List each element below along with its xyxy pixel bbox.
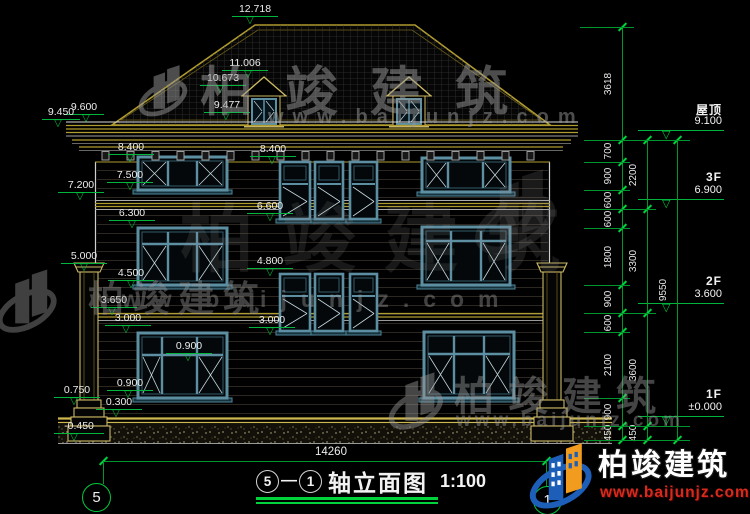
brand-logo-icon bbox=[138, 58, 190, 120]
brand-logo-icon bbox=[528, 438, 596, 512]
brand-logo-icon bbox=[474, 156, 560, 262]
brand-name: 柏竣建筑 bbox=[598, 440, 730, 484]
cad-elevation-drawing: 12.718▽11.006▽10.673▽9.477▽9.600▽9.450▽8… bbox=[0, 0, 750, 514]
brand-url: www.baijunjz.com bbox=[600, 484, 750, 502]
watermark-layer: 柏竣建筑 www.baijunjz.com 柏竣建筑 www.baijunjz.… bbox=[0, 0, 750, 514]
brand-logo-icon bbox=[0, 260, 60, 338]
brand-logo-icon bbox=[388, 364, 446, 434]
brand-logo-block: 柏竣建筑 www.baijunjz.com bbox=[528, 438, 750, 514]
